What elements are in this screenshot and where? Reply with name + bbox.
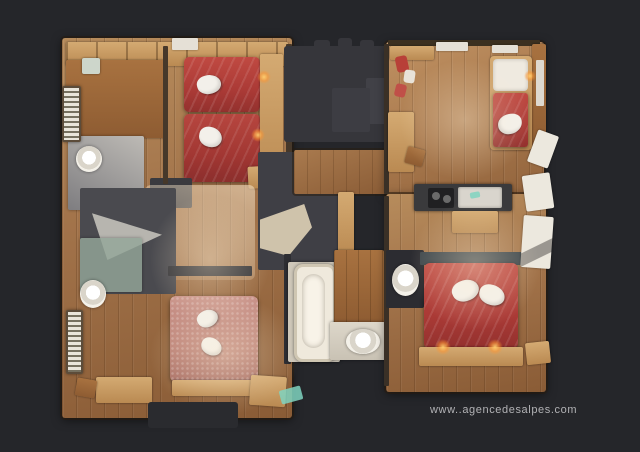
sofa-pillow xyxy=(493,59,528,91)
balcony-object-right-2 xyxy=(522,172,555,212)
right-bed-footboard xyxy=(419,347,523,366)
bathroom-center-wood-strip xyxy=(334,250,384,324)
ghost-tab-2 xyxy=(338,38,352,48)
twin-bed-1 xyxy=(184,57,260,112)
ghost-patch-2 xyxy=(332,88,370,132)
window-right-wall xyxy=(536,60,544,106)
kitchen-base-cabinet xyxy=(452,211,498,233)
toilet-right xyxy=(392,264,419,296)
washbasin-round-left xyxy=(80,280,106,308)
right-bottom-corner-wood xyxy=(525,341,551,365)
double-bed-red xyxy=(424,263,518,349)
corridor-center-floor xyxy=(294,150,392,194)
stool-bottom-left xyxy=(75,377,98,398)
ghost-tab-3 xyxy=(360,40,374,51)
bathtub-basin xyxy=(302,274,325,348)
toilet-top-left xyxy=(76,146,102,172)
paper-on-wall-top-left xyxy=(172,38,198,50)
balcony-railing-top-left xyxy=(62,86,81,142)
washbasin-center xyxy=(346,329,380,354)
desk-bottom-left xyxy=(96,377,152,403)
kitchen-sink xyxy=(458,187,502,208)
paper-top-edge-2 xyxy=(492,45,518,53)
bathroom-door-strip xyxy=(338,192,354,256)
balcony-object-right-3 xyxy=(520,215,554,269)
cooktop xyxy=(428,188,454,208)
ghost-patch-bottom xyxy=(148,402,238,428)
watermark-url: www..agencedesalpes.com xyxy=(430,404,577,416)
balcony-railing-bottom-left xyxy=(66,310,83,374)
bathroom-tl-cabinet xyxy=(66,60,166,138)
wall-bathroom-bedroom xyxy=(163,46,168,184)
floorplan-scan-image: www..agencedesalpes.com xyxy=(0,0,640,452)
paper-top-edge-1 xyxy=(436,42,468,51)
washing-machine xyxy=(82,58,100,74)
pink-bed-head-wall xyxy=(168,266,252,276)
pink-bed-footboard xyxy=(172,380,258,396)
ghost-tab-1 xyxy=(314,40,330,52)
coat-white xyxy=(403,69,416,83)
